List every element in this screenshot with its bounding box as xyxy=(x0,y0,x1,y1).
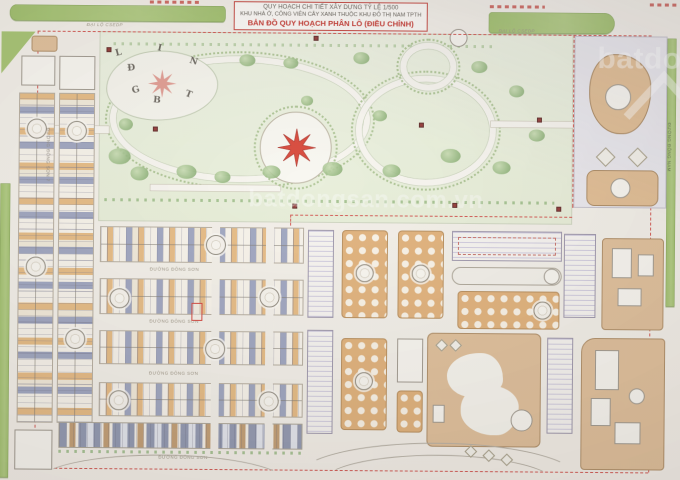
street-label-row: ĐƯỜNG ĐÔNG SƠN xyxy=(150,267,199,272)
survey-marks xyxy=(490,5,545,8)
street-label-row: ĐƯỜNG ĐÔNG SƠN xyxy=(149,371,198,376)
street-label-top-avenue: ĐẠI LỘ CSEDP xyxy=(499,28,535,33)
tree xyxy=(283,58,298,69)
roundabout xyxy=(27,119,47,139)
tree xyxy=(301,96,313,106)
apartment-block xyxy=(307,230,334,318)
building xyxy=(31,36,57,52)
tree xyxy=(471,61,487,73)
tree xyxy=(353,52,369,64)
watermark-house-roof-icon xyxy=(623,58,680,125)
survey-marks xyxy=(150,0,200,3)
roundabout xyxy=(206,235,226,255)
playground-circle xyxy=(629,388,645,404)
title-block: QUY HOẠCH CHI TIẾT XÂY DỰNG TỶ LỆ 1/500 … xyxy=(234,1,428,32)
building xyxy=(433,405,445,423)
villa-block xyxy=(396,390,422,432)
compass-star-icon xyxy=(277,128,317,168)
map-canvas: ĐẠI LỘ CSEDP ĐẠI LỘ CSEDP QUY HOẠCH CHI … xyxy=(0,0,680,480)
roundabout xyxy=(259,287,279,307)
building xyxy=(612,248,632,278)
tree xyxy=(509,85,524,97)
tree xyxy=(382,164,400,177)
tree xyxy=(529,129,545,141)
roundabout xyxy=(65,329,85,349)
facility-block xyxy=(601,238,664,330)
map-paper: ĐẠI LỘ CSEDP ĐẠI LỘ CSEDP QUY HOẠCH CHI … xyxy=(0,0,680,480)
title-line-3: BẢN ĐỒ QUY HOẠCH PHÂN LÔ (ĐIỀU CHỈNH) xyxy=(238,18,424,28)
building xyxy=(14,429,52,469)
tree xyxy=(373,110,387,121)
highlighted-lot xyxy=(191,303,202,321)
tree xyxy=(262,165,280,178)
gate-marker xyxy=(153,127,158,132)
tree xyxy=(214,171,230,183)
tree xyxy=(239,54,255,66)
playground-circle xyxy=(511,409,533,431)
tree xyxy=(493,161,511,174)
roundabout xyxy=(356,264,374,282)
roundabout xyxy=(259,391,279,411)
gate-marker xyxy=(537,118,542,123)
tree xyxy=(323,162,343,176)
lake-star-icon xyxy=(147,68,177,98)
building xyxy=(614,422,640,444)
plaza-small-circle xyxy=(450,29,468,47)
survey-marks xyxy=(650,3,678,6)
tree xyxy=(119,118,133,130)
building xyxy=(591,398,611,426)
apartment-block xyxy=(563,234,596,318)
apartment-block xyxy=(546,338,573,434)
gate-marker xyxy=(106,47,111,52)
roundabout xyxy=(109,390,129,410)
map-photo: ĐẠI LỘ CSEDP ĐẠI LỘ CSEDP QUY HOẠCH CHI … xyxy=(0,0,680,480)
boundary-dash xyxy=(290,215,291,226)
building xyxy=(617,288,641,306)
gate-marker xyxy=(419,123,424,128)
building xyxy=(21,55,55,85)
inner-dashed-lot xyxy=(458,237,556,256)
park-path xyxy=(150,185,280,192)
roundabout xyxy=(533,302,551,320)
apartment-block xyxy=(306,330,333,434)
lake-letter: B xyxy=(153,95,162,106)
roundabout xyxy=(412,265,430,283)
roundabout xyxy=(26,257,46,277)
street-label-left-vertical: ĐƯỜNG ĐÔNG SƠN 7 xyxy=(45,128,51,218)
green-strip-left-edge xyxy=(0,183,10,477)
building xyxy=(59,56,95,90)
green-median-top-left xyxy=(10,4,226,22)
tree xyxy=(109,148,131,164)
gate-marker xyxy=(314,36,319,41)
street-label-top-avenue: ĐẠI LỘ CSEDP xyxy=(87,22,123,27)
tree xyxy=(176,165,196,179)
rowhouse-column xyxy=(57,93,96,423)
tree xyxy=(441,149,461,163)
pond xyxy=(460,385,518,435)
plaza-small-circle xyxy=(544,269,560,285)
park-path xyxy=(491,121,573,128)
gate-marker xyxy=(292,204,297,209)
gate-marker xyxy=(452,203,457,208)
lake-letter: Đ xyxy=(127,63,136,74)
roundabout xyxy=(205,339,225,359)
roundabout xyxy=(67,121,87,141)
gate-marker xyxy=(556,207,561,212)
park-loop-path xyxy=(400,42,456,90)
existing-courtyard xyxy=(610,178,630,198)
tree xyxy=(130,166,148,180)
building xyxy=(595,350,619,390)
street-label-right-vertical: ĐƯỜNG ĐÔNG NAM xyxy=(666,123,672,253)
roundabout xyxy=(109,288,129,308)
building xyxy=(397,338,423,382)
building xyxy=(638,254,654,276)
curved-road xyxy=(38,454,288,480)
roundabout xyxy=(355,372,373,390)
